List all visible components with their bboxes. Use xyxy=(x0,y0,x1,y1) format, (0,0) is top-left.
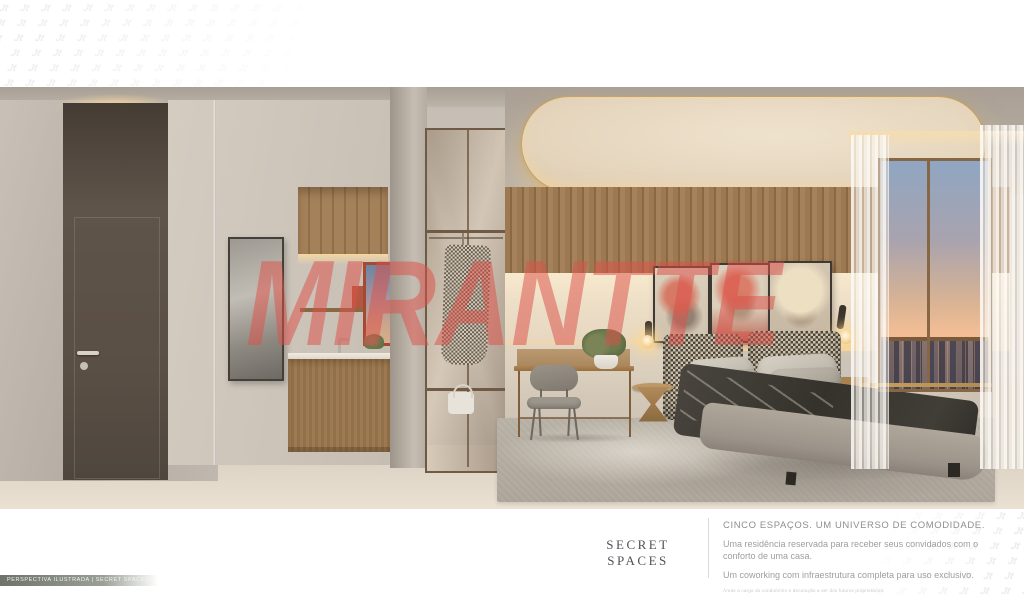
entry-door-panel-outline xyxy=(74,217,160,479)
footer-info: CINCO ESPAÇOS. UM UNIVERSO DE COMODIDADE… xyxy=(723,520,1019,598)
handbag-handle xyxy=(453,384,473,398)
caption-bar: PERSPECTIVA ILUSTRADA | SECRET SPACES xyxy=(0,575,158,586)
door-handle xyxy=(77,351,99,355)
window-frame-mullion xyxy=(927,161,930,389)
cabinet-kick-shadow xyxy=(288,447,391,452)
desk-leg xyxy=(518,371,520,437)
brochure-page: Jt Jt xyxy=(0,0,1024,597)
city-skyline xyxy=(881,337,989,389)
wardrobe-frame-bar xyxy=(427,230,505,233)
sheer-curtain-right xyxy=(980,125,1024,469)
footer-fine-print: Áreas a cargo do condomínio e decoração … xyxy=(723,588,1019,593)
bed-leg xyxy=(948,463,960,477)
footer-title: SECRET SPACES xyxy=(574,537,702,569)
bed-leg xyxy=(785,472,796,486)
desk-leg xyxy=(629,371,631,437)
mirantte-watermark: MIRANTTE xyxy=(246,242,782,364)
kitchen-base-cabinets xyxy=(288,359,391,452)
door-lock xyxy=(80,362,88,370)
footer-headline: CINCO ESPAÇOS. UM UNIVERSO DE COMODIDADE… xyxy=(723,520,1019,531)
window-frame-bar xyxy=(881,337,989,341)
corner-pattern-top-left: Jt xyxy=(0,0,440,92)
footer-paragraph-1: Uma residência reservada para receber se… xyxy=(723,538,985,562)
footer-divider xyxy=(708,518,709,578)
sheer-curtain-left xyxy=(851,135,889,469)
window-city-view xyxy=(878,158,992,392)
footer-paragraph-2: Um coworking com infraestrutura completa… xyxy=(723,569,985,581)
wall-corner-highlight xyxy=(213,100,216,465)
